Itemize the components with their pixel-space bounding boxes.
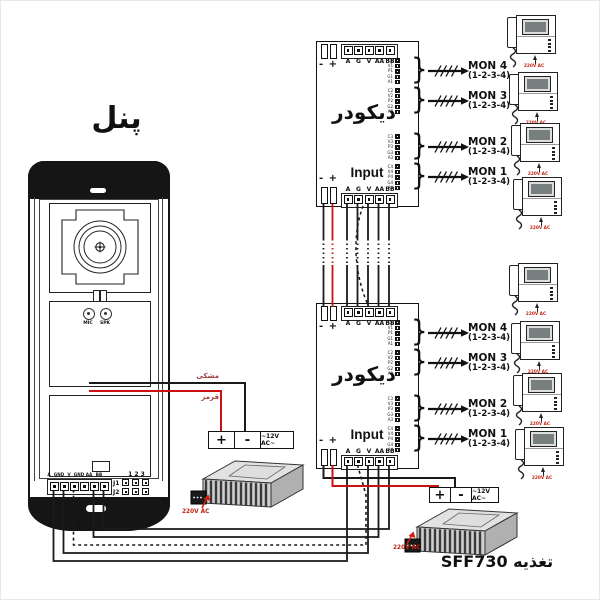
monitor-button[interactable] [554, 404, 557, 406]
panel-terminal [70, 482, 79, 491]
bus-terminal [365, 46, 374, 55]
monitor-button[interactable] [548, 43, 551, 45]
mains-arrow-icon [537, 361, 541, 366]
wire-hatch-icon [452, 434, 458, 445]
strip-pin-label: A1 [379, 79, 393, 84]
strip-pin [395, 145, 400, 150]
panel-top-cap [28, 161, 170, 199]
decoder-2: - +AGVAABBدیکودرInput- +AGVAABBC1V1P1G1A… [316, 303, 419, 469]
wire-hatch-icon [446, 172, 452, 183]
monitor-button[interactable] [556, 458, 559, 460]
mon-wire-count-label: (1-2-3-4) [468, 101, 516, 111]
monitor-button[interactable] [554, 401, 557, 403]
input-terminal [386, 457, 395, 466]
strip-pin-label: G1 [379, 336, 393, 341]
speaker-grille-icon [50, 204, 150, 292]
mains-arrow-icon [533, 55, 537, 60]
wire-hatch-icon [446, 142, 452, 153]
monitor-button[interactable] [552, 349, 555, 351]
monitor-button[interactable] [550, 100, 553, 102]
strip-pin [395, 99, 400, 104]
mains-arrow-icon [539, 413, 543, 418]
strip-pin-label: A2 [379, 371, 393, 376]
mains-arrowhead-icon [409, 532, 416, 539]
monitor-screen [528, 377, 555, 393]
decoder-1: - +AGVAABBدیکودرInput- +AGVAABBC1V1P1G1A… [316, 41, 419, 207]
strip-pin [395, 402, 400, 407]
strip-pin [395, 356, 400, 361]
mains-arrow-icon [535, 112, 539, 117]
panel-terminal-label: BB [93, 472, 105, 477]
strip-pin-label: C2 [379, 88, 393, 93]
cable-brace: } [411, 315, 428, 349]
monitor-button[interactable] [550, 103, 553, 105]
monitor-screen [530, 431, 557, 447]
power-polarity-label: - + [317, 59, 340, 70]
indoor-monitor: 220V AC [509, 263, 559, 319]
wiring-diagram: پنل MIC SPK [0, 0, 600, 600]
mon-wire-count-label: (1-2-3-4) [468, 409, 516, 419]
strip-pin-label: P3 [379, 406, 393, 411]
strip-pin-label: V1 [379, 325, 393, 330]
indoor-monitor: 220V AC [515, 427, 565, 483]
panel-terminal [90, 482, 99, 491]
jumper-row-label-j2: J2 [113, 489, 119, 496]
strip-pin-label: P1 [379, 68, 393, 73]
strip-pin [395, 105, 400, 110]
strip-pin-label: V2 [379, 355, 393, 360]
panel-terminal-group [47, 479, 112, 495]
strip-pin [395, 170, 400, 175]
monitor-button[interactable] [550, 298, 553, 300]
monitor-button[interactable] [548, 50, 551, 52]
psu1-plus: + [209, 432, 235, 448]
jumper-pin[interactable] [142, 479, 149, 486]
strip-pin [395, 418, 400, 423]
mains-arrow-icon [537, 163, 541, 168]
wire-hatch-icon [446, 328, 452, 339]
panel-blank-module [49, 395, 151, 477]
monitor-button[interactable] [552, 147, 555, 149]
strip-pin-label: V1 [379, 63, 393, 68]
psu2-name-label: تغذیه SFF730 [439, 552, 555, 571]
cable-brace: } [411, 345, 428, 379]
strip-pin-label: C3 [379, 396, 393, 401]
power-terminal [330, 187, 337, 204]
strip-pin [395, 151, 400, 156]
psu1-minus: - [235, 432, 261, 448]
panel-speaker-module [49, 203, 151, 293]
strip-pin-label: V2 [379, 93, 393, 98]
monitor-body [520, 123, 560, 162]
mon-wire-count-label: (1-2-3-4) [468, 363, 516, 373]
wire [356, 206, 368, 305]
strip-pin-label: G3 [379, 150, 393, 155]
psu2-mains-label: 220V AC [393, 545, 435, 551]
wire-hatch-icon [446, 96, 452, 107]
strip-pin-label: A1 [379, 341, 393, 346]
strip-pin [395, 342, 400, 347]
monitor-screen [526, 127, 553, 143]
panel-terminal [80, 482, 89, 491]
input-terminal [344, 195, 353, 204]
monitor-button[interactable] [552, 352, 555, 354]
module-notch [92, 461, 110, 472]
psu1-voltage: ~12V AC~ [261, 432, 293, 448]
strip-pin-label: C4 [379, 426, 393, 431]
bus-terminal [354, 308, 363, 317]
bus-terminal [344, 308, 353, 317]
panel-terminal [100, 482, 109, 491]
psu2-terminal-label: + - ~12V AC~ [429, 487, 499, 503]
strip-pin [395, 64, 400, 69]
strip-pin [395, 140, 400, 145]
power-terminal [321, 44, 328, 59]
power-terminal [330, 449, 337, 466]
cable-brace: } [411, 391, 428, 425]
indoor-monitor: 220V AC [507, 15, 557, 71]
jumper-pin[interactable] [142, 488, 149, 495]
wire-hatch-icon [441, 96, 447, 107]
monitor-mains-label: 220V AC [515, 312, 557, 317]
strip-pin [395, 58, 400, 63]
indoor-monitor: 220V AC [513, 373, 563, 429]
wire-hatch-icon [452, 328, 458, 339]
mains-arrow [202, 498, 207, 508]
strip-pin [395, 75, 400, 80]
power-terminal [321, 306, 328, 321]
strip-pin-label: P1 [379, 330, 393, 335]
indoor-monitor: 220V AC [511, 123, 561, 179]
power-terminal [330, 44, 337, 59]
monitor-button[interactable] [550, 96, 553, 98]
monitor-button[interactable] [556, 455, 559, 457]
power-terminal [330, 306, 337, 321]
wire-label-black: مشکی [179, 372, 219, 380]
mains-arrow-icon [541, 467, 545, 472]
monitor-screen [528, 181, 555, 197]
strip-pin [395, 350, 400, 355]
monitor-body [522, 177, 562, 216]
bus-terminal [344, 46, 353, 55]
strip-pin [395, 320, 400, 325]
panel-top-notch [90, 188, 106, 193]
strip-pin [395, 367, 400, 372]
wire-hatch-icon [446, 358, 452, 369]
monitor-button[interactable] [554, 212, 557, 214]
wire-hatch-icon [452, 96, 458, 107]
mains-arrowhead-icon [204, 495, 211, 502]
strip-pin-label: C4 [379, 164, 393, 169]
strip-pin-label: P4 [379, 174, 393, 179]
strip-pin-label: V3 [379, 401, 393, 406]
wire-hatch-icon [452, 404, 458, 415]
monitor-button[interactable] [554, 397, 557, 399]
bus-terminal [386, 46, 395, 55]
strip-pin [395, 372, 400, 377]
wire-hatch-icon [446, 66, 452, 77]
monitor-body [520, 321, 560, 360]
power-polarity-label: - + [317, 435, 340, 446]
monitor-mains-label: 220V AC [521, 476, 563, 481]
panel-micspk-module: MIC SPK [49, 301, 151, 387]
wire-hatch-icon [452, 66, 458, 77]
cable-brace: } [411, 159, 428, 193]
strip-pin-label: G2 [379, 366, 393, 371]
indoor-monitor: 220V AC [509, 72, 559, 128]
monitor-button[interactable] [552, 345, 555, 347]
wire-hatch-icon [435, 142, 441, 153]
spk-icon [100, 308, 112, 320]
monitor-button[interactable] [556, 462, 559, 464]
monitor-button[interactable] [550, 287, 553, 289]
power-terminal [321, 449, 328, 466]
mic-icon [83, 308, 95, 320]
strip-pin [395, 437, 400, 442]
strip-pin [395, 110, 400, 115]
strip-pin [395, 337, 400, 342]
wire-hatch-icon [441, 404, 447, 415]
input-terminal [354, 195, 363, 204]
input-terminal [344, 457, 353, 466]
strip-pin [395, 413, 400, 418]
monitor-screen [524, 76, 551, 92]
jumper-pin[interactable] [132, 488, 139, 495]
mon-wire-count-label: (1-2-3-4) [468, 333, 516, 343]
cable-brace: } [411, 53, 428, 87]
wire-hatch-icon [452, 142, 458, 153]
transformer-graphic [191, 461, 303, 507]
panel-bottom-cap [28, 497, 170, 531]
bus-terminal [375, 46, 384, 55]
power-terminal [321, 187, 328, 204]
strip-pin [395, 432, 400, 437]
panel-call-button[interactable] [86, 505, 106, 512]
input-terminal [375, 195, 384, 204]
wire-hatch-icon [435, 66, 441, 77]
strip-pin-label: P4 [379, 436, 393, 441]
cable-brace: } [411, 129, 428, 163]
panel-terminal [60, 482, 69, 491]
strip-pin-label: P2 [379, 98, 393, 103]
psu2-plus: + [430, 488, 451, 502]
strip-pin-label: V3 [379, 139, 393, 144]
strip-pin [395, 164, 400, 169]
monitor-screen [522, 19, 549, 35]
monitor-button[interactable] [552, 151, 555, 153]
wire-hatch-icon [435, 328, 441, 339]
mon-wire-count-label: (1-2-3-4) [468, 147, 516, 157]
wire-hatch-icon [452, 358, 458, 369]
strip-pin [395, 80, 400, 85]
wire-hatch-icon [452, 172, 458, 183]
strip-pin-label: P3 [379, 144, 393, 149]
mon-wire-count-label: (1-2-3-4) [468, 439, 516, 449]
wire-hatch-icon [446, 434, 452, 445]
strip-pin-label: C2 [379, 350, 393, 355]
mains-arrow-icon [535, 303, 539, 308]
monitor-button[interactable] [554, 408, 557, 410]
psu1-mains-label: 220V AC [182, 509, 224, 515]
wire-hatch-icon [441, 172, 447, 183]
wire-hatch-icon [441, 358, 447, 369]
wire-hatch-icon [441, 142, 447, 153]
monitor-button[interactable] [548, 39, 551, 41]
spk-label: SPK [96, 321, 114, 326]
jumper-pin[interactable] [122, 488, 129, 495]
jumper-header: 1 2 3 [121, 471, 152, 478]
strip-pin-label: G3 [379, 412, 393, 417]
strip-pin [395, 448, 400, 453]
wire-hatch-icon [441, 66, 447, 77]
mic-label: MIC [79, 321, 97, 326]
strip-pin [395, 331, 400, 336]
wire-hatch-icon [441, 434, 447, 445]
monitor-mains-label: 220V AC [519, 226, 561, 231]
strip-pin-label: C1 [379, 58, 393, 63]
strip-pin [395, 361, 400, 366]
strip-pin [395, 175, 400, 180]
bus-terminal [386, 308, 395, 317]
input-terminal [365, 195, 374, 204]
monitor-button[interactable] [548, 46, 551, 48]
bus-terminal [354, 46, 363, 55]
strip-pin-label: A4 [379, 185, 393, 190]
wire-hatch-icon [435, 404, 441, 415]
mains-arrow [407, 535, 412, 544]
wire-label-red: قرمز [183, 393, 219, 401]
strip-pin [395, 326, 400, 331]
wire-hatch-icon [435, 358, 441, 369]
strip-pin [395, 396, 400, 401]
door-panel: MIC SPK AGNDVGNDAABB 1 2 3 J1 J2 [28, 161, 170, 531]
strip-pin [395, 407, 400, 412]
strip-pin [395, 426, 400, 431]
panel-title: پنل [59, 101, 174, 136]
monitor-button[interactable] [552, 356, 555, 358]
bus-terminal [375, 308, 384, 317]
monitor-button[interactable] [550, 294, 553, 296]
strip-pin-label: A3 [379, 417, 393, 422]
strip-pin [395, 443, 400, 448]
indoor-monitor: 220V AC [513, 177, 563, 233]
wire-hatch-icon [435, 96, 441, 107]
strip-pin-label: G2 [379, 104, 393, 109]
monitor-button[interactable] [556, 451, 559, 453]
cable-brace: } [411, 83, 428, 117]
bus-terminal [365, 308, 374, 317]
monitor-button[interactable] [554, 208, 557, 210]
psu2-minus: - [451, 488, 472, 502]
cable-brace: } [411, 421, 428, 455]
wire-hatch-icon [441, 328, 447, 339]
strip-pin-label: A2 [379, 109, 393, 114]
monitor-body [522, 373, 562, 412]
jumper-row-label-j1: J1 [113, 480, 119, 487]
panel-frame-line-right [162, 197, 163, 481]
mains-arrow-icon [539, 217, 543, 222]
strip-pin-label: C3 [379, 134, 393, 139]
psu2-voltage: ~12V AC~ [472, 488, 498, 502]
panel-frame-line-left [34, 197, 35, 481]
jumper-pin[interactable] [122, 479, 129, 486]
strip-pin-label: G4 [379, 442, 393, 447]
monitor-body [516, 15, 556, 54]
input-terminal [365, 457, 374, 466]
strip-pin-label: A3 [379, 155, 393, 160]
input-terminal [354, 457, 363, 466]
monitor-body [518, 72, 558, 111]
monitor-button[interactable] [552, 158, 555, 160]
strip-pin [395, 94, 400, 99]
strip-pin-label: V4 [379, 169, 393, 174]
indoor-monitor: 220V AC [511, 321, 561, 377]
monitor-button[interactable] [554, 201, 557, 203]
monitor-button[interactable] [550, 291, 553, 293]
strip-pin [395, 88, 400, 93]
strip-pin-label: A4 [379, 447, 393, 452]
input-terminal [386, 195, 395, 204]
monitor-screen [524, 267, 551, 283]
jumper-pin[interactable] [132, 479, 139, 486]
monitor-button[interactable] [552, 154, 555, 156]
strip-pin [395, 69, 400, 74]
monitor-body [524, 427, 564, 466]
monitor-button[interactable] [554, 205, 557, 207]
monitor-button[interactable] [550, 107, 553, 109]
strip-pin-label: P2 [379, 360, 393, 365]
mon-wire-count-label: (1-2-3-4) [468, 71, 516, 81]
strip-pin-label: C1 [379, 320, 393, 325]
panel-terminal [50, 482, 59, 491]
mon-wire-count-label: (1-2-3-4) [468, 177, 516, 187]
strip-pin [395, 134, 400, 139]
strip-pin-label: V4 [379, 431, 393, 436]
strip-pin-label: G1 [379, 74, 393, 79]
wire-hatch-icon [446, 404, 452, 415]
power-polarity-label: - + [317, 173, 340, 184]
strip-pin [395, 156, 400, 161]
input-terminal [375, 457, 384, 466]
psu1-terminal-label: + - ~12V AC~ [208, 431, 294, 449]
strip-pin [395, 181, 400, 186]
monitor-body [518, 263, 558, 302]
wire-hatch-icon [435, 172, 441, 183]
monitor-mains-label: 220V AC [513, 64, 555, 69]
strip-pin [395, 186, 400, 191]
wire-hatch-icon [435, 434, 441, 445]
monitor-screen [526, 325, 553, 341]
strip-pin-label: G4 [379, 180, 393, 185]
power-polarity-label: - + [317, 321, 340, 332]
